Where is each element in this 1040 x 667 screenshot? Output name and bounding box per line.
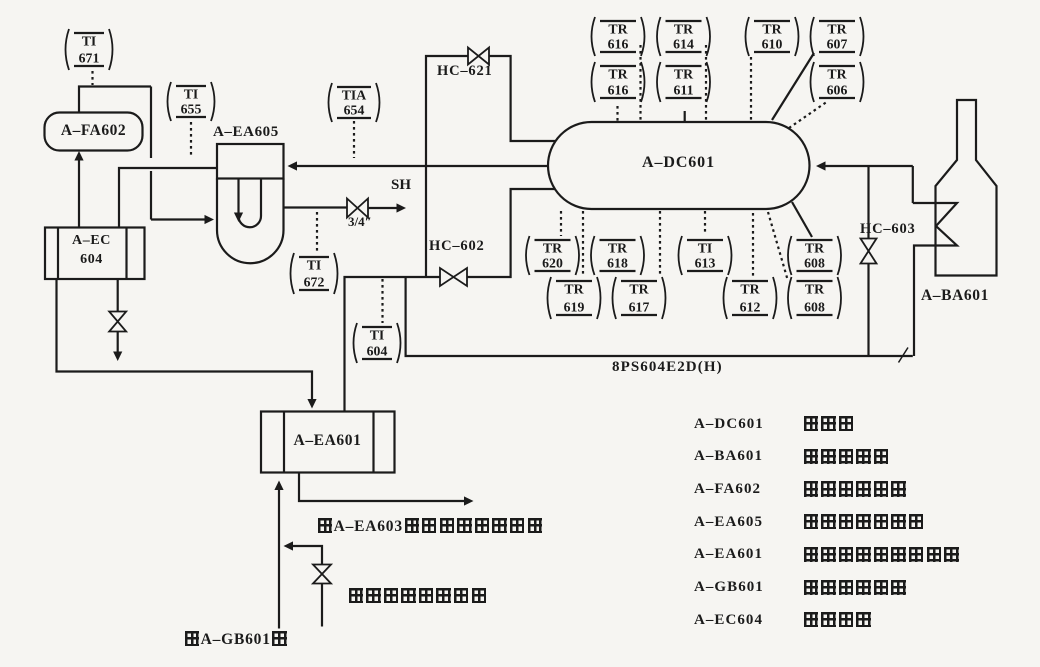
svg-text:TI: TI — [370, 328, 385, 343]
svg-text:TI: TI — [184, 87, 199, 102]
svg-text:TR: TR — [674, 22, 694, 37]
svg-text:618: 618 — [607, 256, 628, 271]
svg-text:TR: TR — [674, 67, 694, 82]
svg-text:614: 614 — [673, 37, 694, 52]
svg-text:616: 616 — [608, 83, 629, 98]
svg-text:TIA: TIA — [342, 88, 367, 103]
svg-text:610: 610 — [762, 37, 783, 52]
svg-text:613: 613 — [695, 256, 716, 271]
svg-text:619: 619 — [564, 300, 585, 315]
svg-text:TR: TR — [740, 282, 760, 297]
svg-text:TR: TR — [543, 241, 563, 256]
svg-text:TI: TI — [307, 258, 322, 273]
svg-text:TR: TR — [827, 67, 847, 82]
svg-text:611: 611 — [674, 83, 694, 98]
svg-text:617: 617 — [629, 300, 650, 315]
svg-text:TR: TR — [608, 241, 628, 256]
svg-text:TI: TI — [698, 241, 713, 256]
svg-text:TR: TR — [805, 282, 825, 297]
svg-text:606: 606 — [827, 83, 848, 98]
svg-text:608: 608 — [804, 256, 825, 271]
svg-text:655: 655 — [181, 102, 202, 117]
svg-text:671: 671 — [79, 51, 100, 66]
svg-text:604: 604 — [367, 344, 388, 359]
svg-text:TR: TR — [805, 241, 825, 256]
svg-text:654: 654 — [344, 103, 365, 118]
svg-text:620: 620 — [542, 256, 563, 271]
svg-text:TR: TR — [608, 22, 628, 37]
svg-text:TR: TR — [827, 22, 847, 37]
svg-text:TR: TR — [629, 282, 649, 297]
svg-text:TR: TR — [608, 67, 628, 82]
svg-text:672: 672 — [304, 275, 325, 290]
svg-text:608: 608 — [804, 300, 825, 315]
svg-text:TR: TR — [564, 282, 584, 297]
svg-text:TR: TR — [762, 22, 782, 37]
svg-text:TI: TI — [82, 34, 97, 49]
svg-text:612: 612 — [740, 300, 761, 315]
svg-text:616: 616 — [608, 37, 629, 52]
svg-text:607: 607 — [827, 37, 848, 52]
